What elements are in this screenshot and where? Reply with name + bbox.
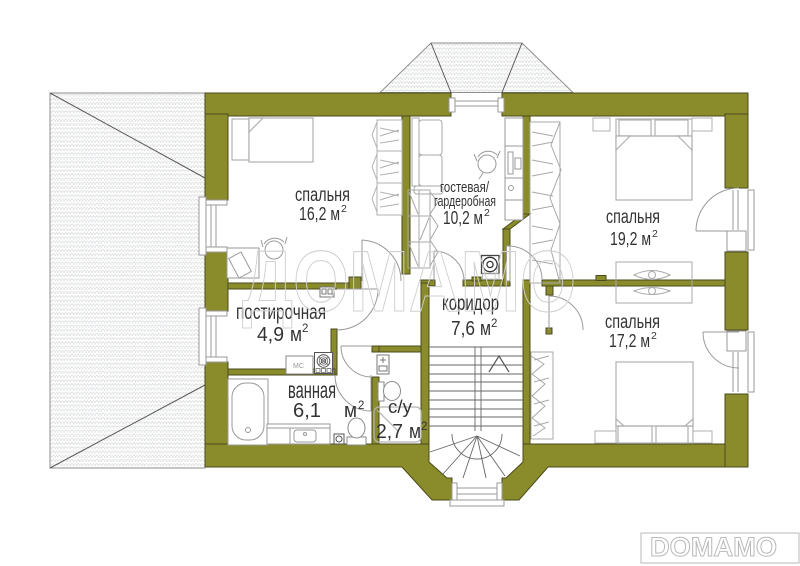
svg-text:2: 2 [341,203,347,215]
svg-text:м: м [409,421,421,443]
svg-text:17,2 м: 17,2 м [609,330,650,351]
svg-text:19,2 м: 19,2 м [610,228,651,249]
svg-text:2: 2 [358,400,364,412]
svg-text:ДОМАМО: ДОМАМО [242,234,576,330]
svg-text:2,7: 2,7 [376,421,403,443]
svg-text:м: м [344,400,357,422]
svg-text:2: 2 [484,207,490,219]
svg-text:спальня: спальня [606,207,660,228]
svg-text:с/у: с/у [388,397,412,417]
svg-text:2: 2 [652,228,658,240]
svg-text:DOMAMO: DOMAMO [650,532,777,562]
svg-text:2: 2 [421,421,427,433]
svg-text:МС: МС [293,363,304,370]
svg-text:6,1: 6,1 [293,400,321,422]
svg-text:16,2 м: 16,2 м [299,203,340,224]
svg-text:2: 2 [651,330,657,342]
svg-text:10,2 м: 10,2 м [443,207,483,228]
